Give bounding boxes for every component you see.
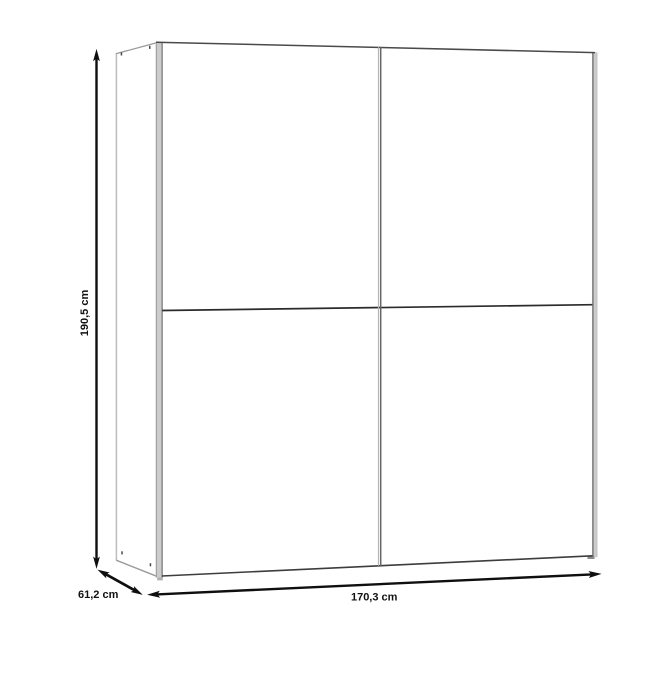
svg-text:170,3 cm: 170,3 cm — [351, 592, 398, 604]
svg-text:61,2 cm: 61,2 cm — [78, 589, 119, 601]
svg-text:190,5 cm: 190,5 cm — [79, 290, 91, 337]
